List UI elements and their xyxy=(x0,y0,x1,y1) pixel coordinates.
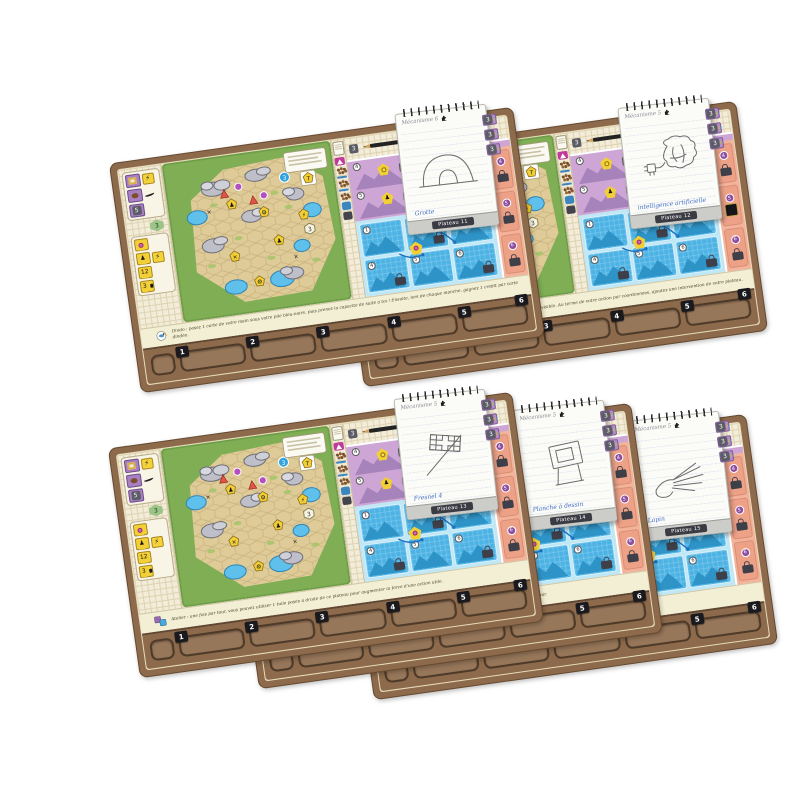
flag-dot-icon xyxy=(499,147,500,150)
rule-icon xyxy=(153,329,170,344)
purple-token: 3 xyxy=(604,439,619,452)
tab-5: 5 xyxy=(456,591,470,604)
purple-token: 3 xyxy=(719,450,734,463)
tab-3: 3 xyxy=(315,611,329,624)
rail-slot: 3 xyxy=(543,317,611,347)
lock-icon xyxy=(503,215,515,224)
orange-cell: 5 xyxy=(613,487,638,529)
svg-text:⚙: ⚙ xyxy=(256,563,262,571)
mountain-silhouette xyxy=(411,548,450,571)
purple-token: 3 xyxy=(717,435,732,448)
mountain-silhouette xyxy=(412,263,451,286)
swoosh-icon xyxy=(144,190,155,197)
resource-tile xyxy=(125,473,142,488)
flag-dot-icon xyxy=(728,440,729,443)
ring-icon xyxy=(138,242,144,248)
label-bar xyxy=(336,461,346,464)
lock-icon xyxy=(621,511,633,520)
wood-resource-pile xyxy=(336,464,347,472)
puzzle-icon xyxy=(559,410,567,418)
step-number: 4 xyxy=(718,151,728,161)
label-bar xyxy=(337,176,347,179)
pentagon-badge: 3 xyxy=(139,566,149,578)
svg-text:×: × xyxy=(231,539,237,547)
plateau-label: Plateau 12 xyxy=(655,211,697,224)
rail-slot: 56 xyxy=(461,303,529,333)
flag-dot-icon xyxy=(732,454,733,457)
meeple-icon: ♟ xyxy=(137,252,149,264)
step-number: 1 xyxy=(361,511,370,520)
flag-dot-icon xyxy=(615,443,616,446)
tiles-icon xyxy=(152,614,168,629)
value-badge: 5 xyxy=(131,491,141,501)
gray-value-tile: 3 xyxy=(572,137,582,147)
tab-6: 6 xyxy=(632,590,646,603)
purple-token: 3 xyxy=(707,122,722,135)
purple-token: 3 xyxy=(484,128,499,141)
blue-cell: 6 xyxy=(685,549,732,589)
step-number: 6 xyxy=(574,545,583,554)
lock-icon xyxy=(482,549,494,558)
picture-frame-icon xyxy=(127,462,136,470)
step-number: 4 xyxy=(351,448,360,457)
x-mark-icon: × xyxy=(205,494,211,502)
wood-resource-pile xyxy=(560,173,571,181)
flag-dot-icon xyxy=(726,425,727,428)
svg-text:♟: ♟ xyxy=(228,486,234,494)
lock-icon xyxy=(617,270,629,279)
svg-text:♟: ♟ xyxy=(229,201,235,209)
label-bar xyxy=(338,473,348,476)
notepad-page: intelligence artificielle xyxy=(623,112,717,214)
wood-resource-pile xyxy=(338,477,349,485)
lock-icon xyxy=(393,561,405,570)
wood-resource-pile xyxy=(339,192,350,200)
round-card xyxy=(332,141,345,156)
token-value: 3 xyxy=(486,429,496,439)
notepad-handwriting: Fresnel 4 xyxy=(413,492,442,502)
lock-icon xyxy=(432,520,444,529)
purple-token: 3 xyxy=(715,420,730,433)
chip-icon xyxy=(724,203,739,218)
tab-3: 3 xyxy=(316,326,330,339)
rail-slot: 56 xyxy=(694,610,762,640)
rail-slot: 1 xyxy=(178,628,246,658)
flag-dot-icon xyxy=(496,432,497,435)
token-value: 3 xyxy=(706,109,716,119)
aid-card-top: ⚡ 5 xyxy=(121,168,165,222)
pentagon-badge: 12 xyxy=(138,551,150,563)
flag-dot-icon xyxy=(497,132,498,135)
step-number: 6 xyxy=(455,534,464,543)
token-value: 3 xyxy=(710,138,720,148)
svg-text:♟: ♟ xyxy=(276,237,282,245)
flag-dot-icon xyxy=(498,432,499,435)
orange-cell: 6 xyxy=(500,518,525,560)
lock-icon xyxy=(433,235,445,244)
cave-sketch xyxy=(409,138,484,196)
lock-icon xyxy=(656,229,668,238)
notepad-handwriting: Grotte xyxy=(414,208,434,217)
blue-cell: 1 xyxy=(358,503,405,543)
step-number: 5 xyxy=(634,249,643,258)
round-card xyxy=(331,426,344,441)
dark-action-tile xyxy=(342,211,352,220)
pentagon-badge: 12 xyxy=(139,266,151,278)
label-bar xyxy=(339,188,349,191)
flag-dot-icon xyxy=(613,429,614,432)
tab-6: 6 xyxy=(737,288,751,301)
value-tile: 5 xyxy=(128,203,145,218)
orange-cell: 6 xyxy=(734,540,759,582)
blue-action-tile xyxy=(341,201,351,210)
step-number: 1 xyxy=(585,220,594,229)
step-number: 6 xyxy=(679,243,688,252)
hex-map-art: ♟ ⚙ × ♟ ⚡ ⚙ × × 3 3 7 xyxy=(160,426,351,608)
lock-icon xyxy=(394,276,406,285)
purple-token: 3 xyxy=(485,428,500,441)
lock-icon xyxy=(716,571,728,580)
blue-cell: 4 xyxy=(363,539,410,579)
progress-panel: 3 3 4 3 5 ♟ 3 1 xyxy=(344,116,529,297)
puzzle-icon xyxy=(150,284,153,288)
clay-resource-icon xyxy=(130,478,138,484)
step-number: 6 xyxy=(625,536,635,546)
dark-action-tile xyxy=(565,205,575,214)
token-value: 3 xyxy=(708,124,718,134)
blue-action-tile xyxy=(564,195,574,204)
tab-5: 5 xyxy=(575,602,589,615)
step-number: 4 xyxy=(575,157,584,166)
ring-icon xyxy=(413,245,419,251)
svg-text:⚙: ⚙ xyxy=(261,209,267,217)
hex-token: 3 xyxy=(148,504,164,518)
board-frame: ⚡ 5 3 ♟⚡ 12 3 xyxy=(117,115,538,386)
flag-dot-icon xyxy=(617,443,618,446)
lock-icon xyxy=(720,167,732,176)
track-step: 12 xyxy=(137,266,153,280)
aid-row: 5 xyxy=(128,201,161,218)
token-value: 3 xyxy=(718,437,728,447)
flag-dot-icon xyxy=(611,414,612,417)
ring-icon xyxy=(412,530,418,536)
purple-token: 3 xyxy=(705,107,720,120)
artifact-tile xyxy=(124,173,141,188)
track-step xyxy=(132,523,148,537)
plateau-label: Plateau 14 xyxy=(550,513,592,526)
token-value: 3 xyxy=(483,115,493,125)
pentagon-node xyxy=(409,241,424,256)
lock-icon xyxy=(601,560,613,569)
purple-marker xyxy=(233,468,241,476)
step-number: 5 xyxy=(356,191,365,200)
flag-dot-icon xyxy=(718,112,719,115)
orange-cell: 5 xyxy=(718,185,743,227)
lock-icon xyxy=(730,480,742,489)
blue-action-tile xyxy=(340,486,350,495)
board-frame: ⚡ 5 3 ♟⚡ 12 3 xyxy=(116,400,537,671)
tab-1: 1 xyxy=(175,346,189,359)
flag-dot-icon xyxy=(495,133,496,136)
clay-resource-icon xyxy=(131,193,139,199)
x-mark-icon: × xyxy=(206,209,212,217)
sun-icon xyxy=(381,167,387,173)
blue-cell: 4 xyxy=(364,254,411,294)
aid-card-track: ♟⚡ 12 3 xyxy=(129,517,175,582)
step-number: 4 xyxy=(352,163,361,172)
tab-5: 5 xyxy=(680,300,694,313)
flag-dot-icon xyxy=(728,425,729,428)
rail-slot: 4 xyxy=(390,313,458,343)
tab-5: 5 xyxy=(690,613,704,626)
svg-text:♟: ♟ xyxy=(275,522,281,530)
rule-icon xyxy=(152,614,169,629)
rail-slot: 3 xyxy=(319,608,387,638)
pentagon-badge xyxy=(134,524,146,536)
orange-cell: 5 xyxy=(494,476,519,518)
purple-marker xyxy=(259,476,267,484)
step-number: 4 xyxy=(590,255,599,264)
notepad-page: Grotte xyxy=(400,118,494,220)
hex-map-art: ♟ ⚙ × ♟ ⚡ ⚙ × × 3 3 7 xyxy=(161,141,352,323)
flag-dot-icon xyxy=(720,126,721,129)
plateau-label: Plateau 11 xyxy=(432,217,474,230)
orange-cell: 6 xyxy=(724,227,749,269)
plateau-label: Plateau 13 xyxy=(431,502,473,515)
blue-cell: 4 xyxy=(587,248,634,288)
swoosh-icon xyxy=(143,475,154,482)
lock-icon xyxy=(706,258,718,267)
lightning-icon: ⚡ xyxy=(140,457,153,470)
step-number: 6 xyxy=(740,547,750,557)
progress-panel: 3 3 4 3 5 ♟ 3 1 xyxy=(343,401,528,582)
purple-token: 3 xyxy=(483,413,498,426)
wood-resource-pile xyxy=(559,161,570,169)
tab-6: 6 xyxy=(513,579,527,592)
tab-6: 6 xyxy=(514,294,528,307)
value-tile: 5 xyxy=(127,488,144,503)
blue-cell: 6 xyxy=(570,538,617,578)
rail-slot xyxy=(150,353,177,377)
step-number: 5 xyxy=(411,255,420,264)
bird-tile xyxy=(557,151,568,160)
puzzle-icon xyxy=(440,399,448,407)
flag-dot-icon xyxy=(716,112,717,115)
token-value: 3 xyxy=(720,451,730,461)
wood-resource-pile xyxy=(335,452,346,460)
token-value: 3 xyxy=(603,426,613,436)
bird-icon xyxy=(336,158,343,164)
lightning-icon: ⚡ xyxy=(141,172,154,185)
lock-icon xyxy=(666,542,678,551)
flag-dot-icon xyxy=(496,417,497,420)
step-number: 5 xyxy=(501,198,511,208)
step-number: 4 xyxy=(728,464,738,474)
purple-token: 3 xyxy=(482,113,497,126)
tab-5: 5 xyxy=(457,306,471,319)
lock-icon xyxy=(731,251,743,260)
blue-cell: 1 xyxy=(582,212,629,252)
rail-slot xyxy=(149,638,176,662)
puzzle-icon xyxy=(441,114,449,122)
picture-frame-icon xyxy=(128,177,137,185)
notepad-page: Lapin xyxy=(633,425,727,527)
lock-icon xyxy=(741,564,753,573)
blue-cell: 1 xyxy=(359,218,406,258)
puzzle-icon xyxy=(664,108,672,116)
mountain-silhouette xyxy=(586,227,625,250)
step-number: 5 xyxy=(619,494,629,504)
step-number: 6 xyxy=(689,556,698,565)
lock-icon xyxy=(508,257,520,266)
rail-slot: 4 xyxy=(613,307,681,337)
step-number: 4 xyxy=(494,442,504,452)
step-number: 5 xyxy=(355,476,364,485)
token-value: 3 xyxy=(484,415,494,425)
purple-token: 3 xyxy=(486,143,501,156)
dark-action-tile xyxy=(341,496,351,505)
purple-token: 3 xyxy=(481,398,496,411)
lightning-icon: ⚡ xyxy=(151,250,164,263)
token-value: 3 xyxy=(716,422,726,432)
orange-cell: 5 xyxy=(728,498,753,540)
token-value: 3 xyxy=(601,411,611,421)
lock-icon xyxy=(483,264,495,273)
blue-cell: 6 xyxy=(452,242,499,282)
orange-cell: 6 xyxy=(501,233,526,275)
flag-dot-icon xyxy=(492,403,493,406)
notepad-handwriting: Lapin xyxy=(647,516,665,525)
flag-dot-icon xyxy=(493,118,494,121)
bird-icon xyxy=(559,152,566,158)
purple-marker xyxy=(260,191,268,199)
blue-cell: 6 xyxy=(451,527,498,567)
brain-sketch xyxy=(632,132,707,190)
pentagon-badge xyxy=(409,241,424,256)
step-number: 5 xyxy=(500,483,510,493)
flag-dot-icon xyxy=(718,127,719,130)
aid-card-track: ♟⚡ 12 3 xyxy=(130,232,176,297)
tab-2: 2 xyxy=(245,621,259,634)
rail-slot: 2 xyxy=(249,333,317,363)
x-mark-icon: × xyxy=(293,253,299,261)
purple-token: 3 xyxy=(709,137,724,150)
wood-resource-pile xyxy=(562,186,573,194)
artifact-tile xyxy=(123,458,140,473)
orange-cell: 5 xyxy=(495,191,520,233)
tab-4: 4 xyxy=(387,316,401,329)
pentagon-node xyxy=(408,526,423,541)
svg-text:⚙: ⚙ xyxy=(260,494,266,502)
step-number: 6 xyxy=(507,240,517,250)
flag-dot-icon xyxy=(495,118,496,121)
purple-token: 3 xyxy=(600,409,615,422)
rail-slot: 56 xyxy=(579,599,647,629)
bird-tile xyxy=(334,157,345,166)
lock-icon xyxy=(502,500,514,509)
purple-marker xyxy=(234,183,242,191)
notepad-page: Planche à dessin xyxy=(518,414,612,516)
step-number: 5 xyxy=(734,505,744,515)
tab-2: 2 xyxy=(246,336,260,349)
lock-icon xyxy=(496,458,508,467)
rail-slot: 1 xyxy=(179,343,247,373)
lock-icon xyxy=(507,542,519,551)
tab-1: 1 xyxy=(174,631,188,644)
step-number: 4 xyxy=(613,453,623,463)
pentagon-badge xyxy=(135,239,147,251)
tab-6: 6 xyxy=(747,601,761,614)
wood-resource-pile xyxy=(337,179,348,187)
flag-dot-icon xyxy=(730,439,731,442)
lock-icon xyxy=(551,531,563,540)
track-step: 12 xyxy=(136,551,152,565)
step-number: 6 xyxy=(730,234,740,244)
flag-dot-icon xyxy=(494,403,495,406)
value-badge: 5 xyxy=(132,206,142,216)
notepad-page: Fresnel 4 xyxy=(399,403,493,505)
track-step: 3 xyxy=(139,280,155,294)
flag-dot-icon xyxy=(613,414,614,417)
drafting-table-sketch xyxy=(527,434,602,492)
track-step: ♟ xyxy=(134,537,150,551)
flag-dot-icon xyxy=(730,454,731,457)
svg-text:⚙: ⚙ xyxy=(257,278,263,286)
tab-4: 4 xyxy=(610,310,624,323)
pentagon-badge: 3 xyxy=(140,281,150,293)
rail-slot: 56 xyxy=(460,588,528,618)
track-row: 3 xyxy=(139,277,172,293)
hex-map: ♟ ⚙ × ♟ ⚡ ⚙ × × 3 3 7 xyxy=(161,141,352,323)
mountain-silhouette xyxy=(363,233,402,256)
gray-value-tile: 3 xyxy=(349,143,359,153)
orange-cell: 6 xyxy=(619,529,644,571)
round-card xyxy=(555,135,568,150)
step-number: 6 xyxy=(456,249,465,258)
token-value: 3 xyxy=(605,440,615,450)
sun-icon xyxy=(604,161,610,167)
track-step: 3 xyxy=(138,565,154,579)
step-number: 5 xyxy=(724,193,734,203)
purple-token: 3 xyxy=(602,424,617,437)
ring-icon xyxy=(137,527,143,533)
puzzle-icon xyxy=(149,569,152,573)
flag-dot-icon xyxy=(722,141,723,144)
rail-slot: 3 xyxy=(320,323,388,353)
hex-token: 3 xyxy=(149,219,165,233)
pentagon-badge xyxy=(408,526,423,541)
sun-icon xyxy=(380,452,386,458)
progress-panel: 3 3 4 3 5 ♟ 3 1 xyxy=(567,110,752,291)
plateau-label: Plateau 15 xyxy=(665,524,707,537)
puzzle-icon xyxy=(674,421,682,429)
step-number: 4 xyxy=(495,157,505,167)
bird-icon xyxy=(335,443,342,449)
ring-icon xyxy=(636,239,642,245)
bird-tile xyxy=(333,442,344,451)
resource-tile xyxy=(126,188,143,203)
bird-icon xyxy=(153,329,169,344)
aid-card-top: ⚡ 5 xyxy=(120,453,164,507)
lightning-icon: ⚡ xyxy=(150,535,163,548)
aid-row: 5 xyxy=(127,486,160,503)
mountain-silhouette xyxy=(362,518,401,541)
svg-text:×: × xyxy=(232,254,238,262)
lock-icon xyxy=(736,522,748,531)
tab-4: 4 xyxy=(386,601,400,614)
hand-sketch xyxy=(642,445,717,503)
token-value: 3 xyxy=(487,144,497,154)
